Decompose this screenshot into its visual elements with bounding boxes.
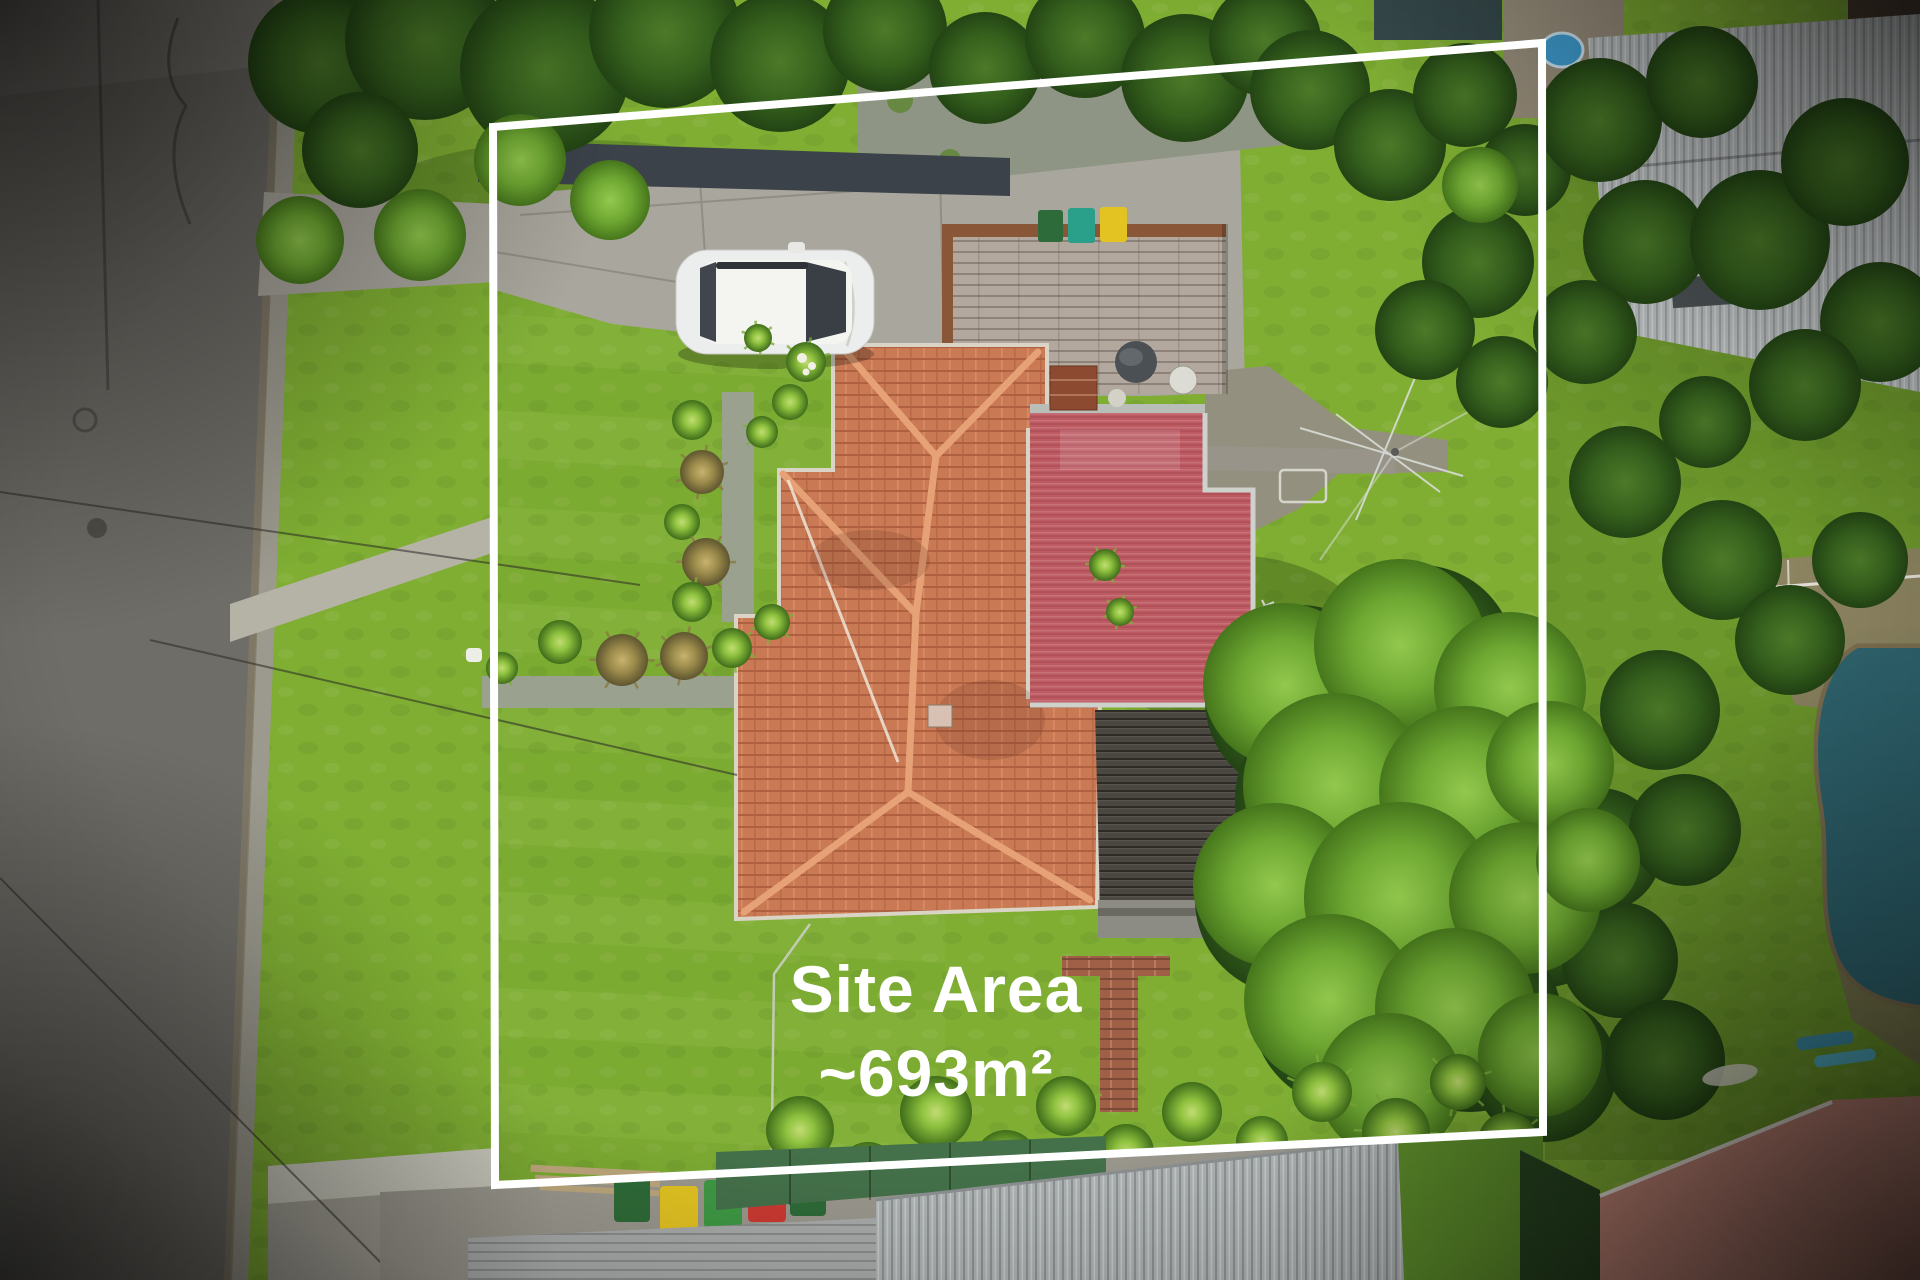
aerial-photo-canvas: Site Area ~693m² — [0, 0, 1920, 1280]
site-area-value: ~693m² — [818, 1036, 1053, 1110]
aerial-photo: Site Area ~693m² — [0, 0, 1920, 1280]
site-area-label: Site Area — [790, 952, 1083, 1026]
